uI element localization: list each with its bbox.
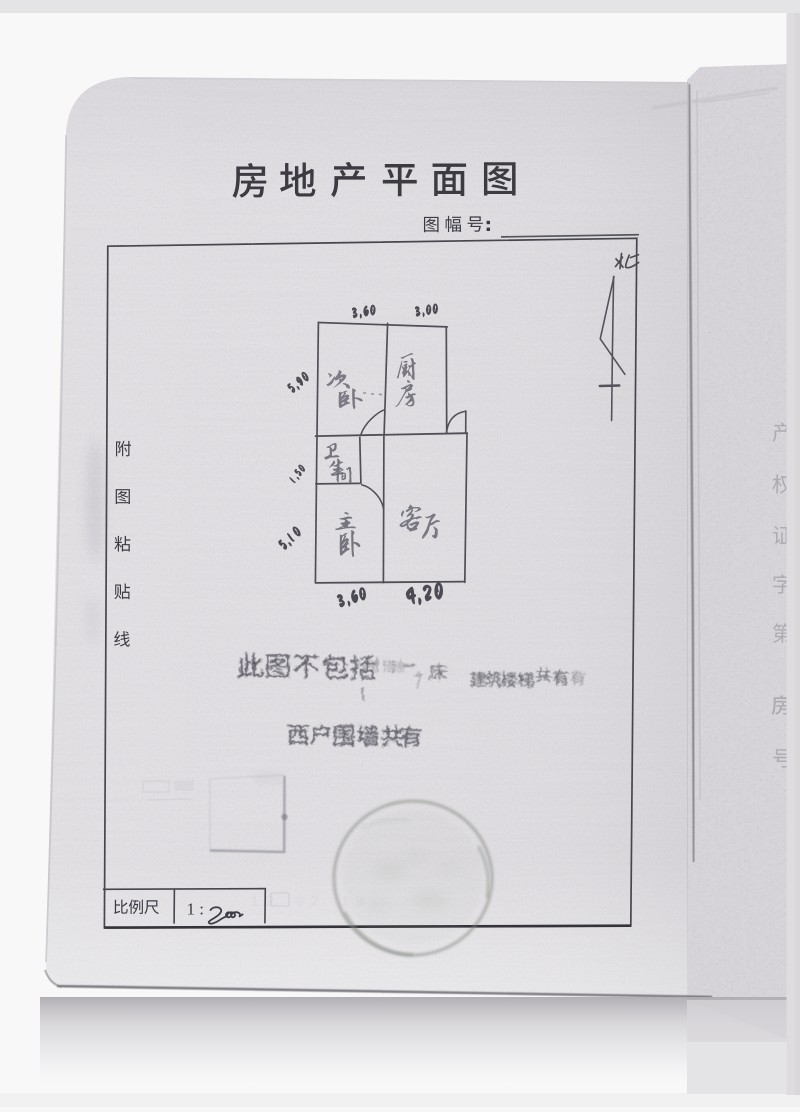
svg-text:1 :: 1 : — [187, 900, 204, 919]
